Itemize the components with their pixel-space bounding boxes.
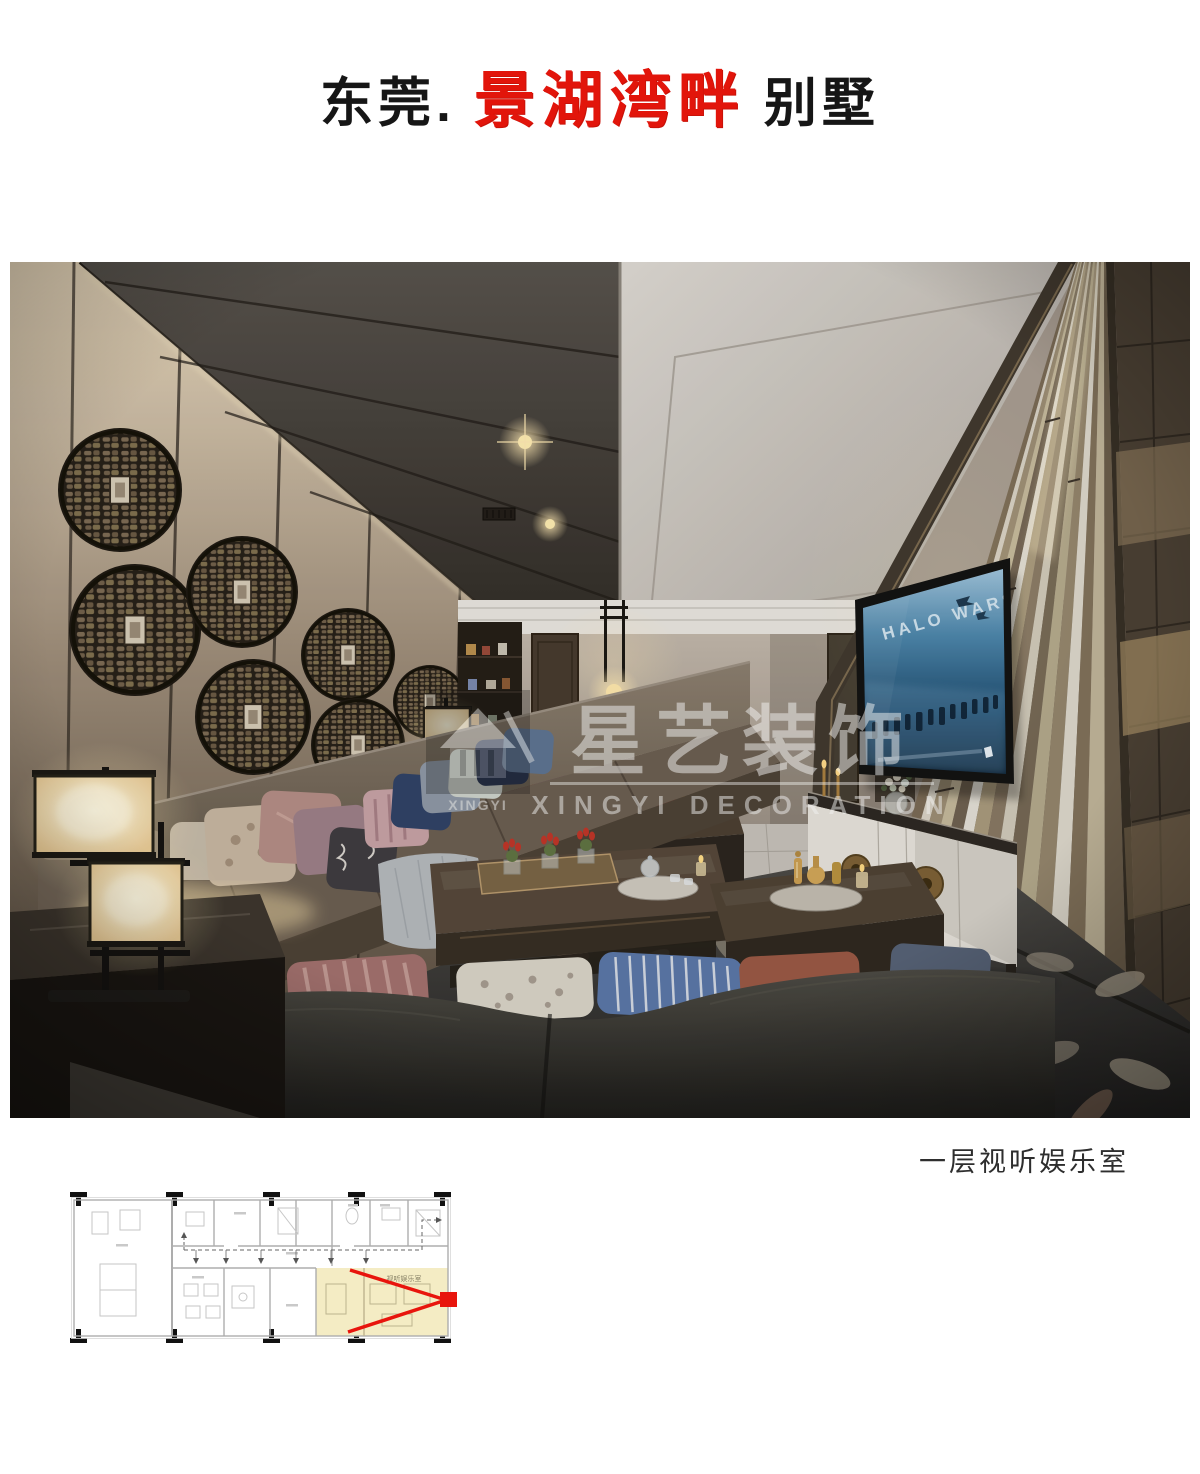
title-prefix: 东莞. [320,61,456,137]
presentation-page: 东莞. 景湖湾畔 别墅 [0,0,1200,1474]
interior-scene: HALO WARS [10,262,1190,1118]
title-highlight: 景湖湾畔 [474,50,746,139]
floor-plan: 视听娱乐室 [64,1188,468,1356]
photo-caption: 一层视听娱乐室 [919,1140,1129,1179]
vignette [10,262,1190,1118]
title-suffix: 别墅 [764,61,880,137]
floor-plan-drawing: 视听娱乐室 [64,1188,468,1356]
interior-rendering-photo: HALO WARS [10,262,1190,1118]
page-title: 东莞. 景湖湾畔 别墅 [0,50,1200,139]
